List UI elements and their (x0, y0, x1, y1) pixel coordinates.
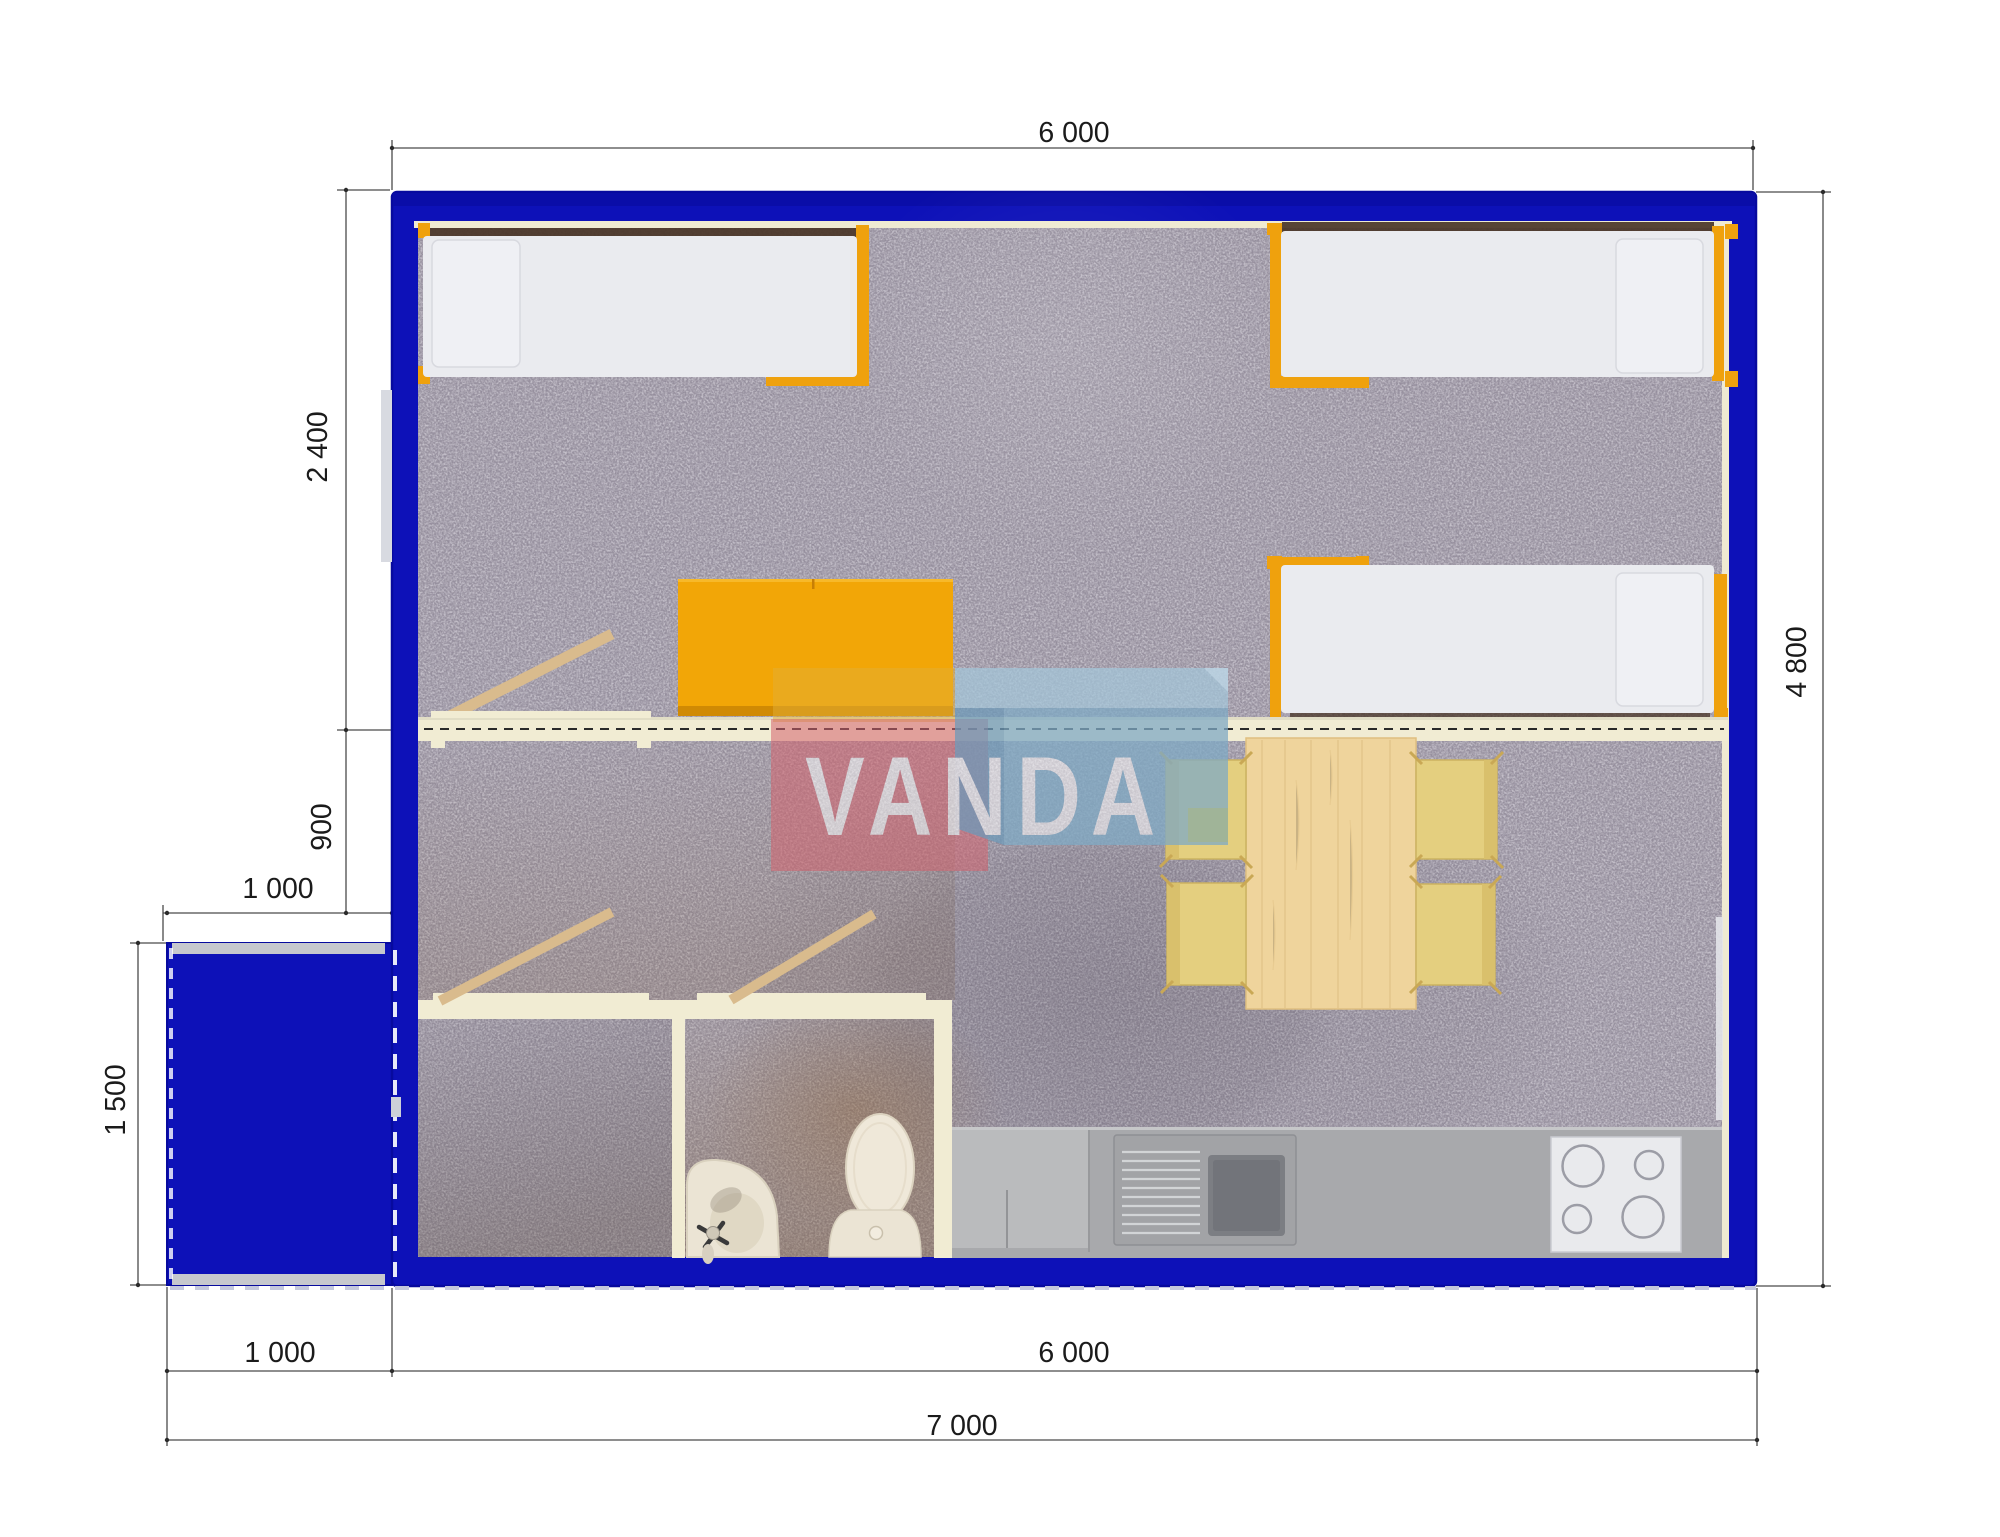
svg-text:1 000: 1 000 (242, 873, 313, 905)
svg-text:1 000: 1 000 (244, 1337, 315, 1369)
svg-text:900: 900 (306, 803, 338, 851)
svg-text:4 800: 4 800 (1781, 626, 1813, 697)
svg-text:6 000: 6 000 (1038, 117, 1109, 149)
svg-text:2 400: 2 400 (302, 411, 334, 482)
svg-text:1 500: 1 500 (100, 1064, 132, 1135)
svg-text:7 000: 7 000 (926, 1410, 997, 1442)
svg-text:6 000: 6 000 (1038, 1337, 1109, 1369)
